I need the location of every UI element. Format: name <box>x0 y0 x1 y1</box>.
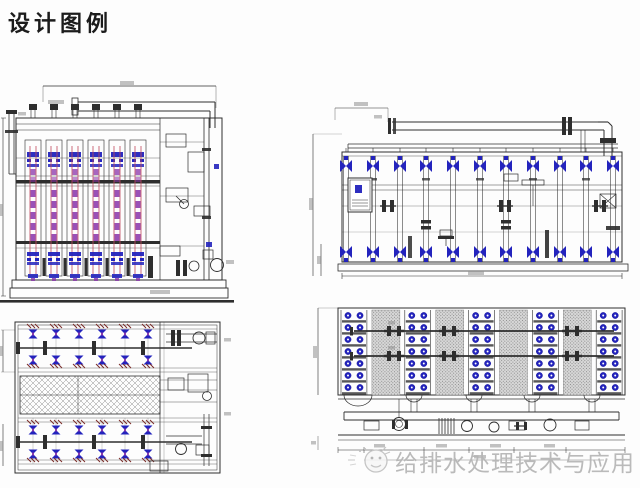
drawing-side-elevation <box>300 86 640 302</box>
mid-couplings <box>380 174 620 258</box>
right-piping <box>150 322 217 473</box>
bottom-dimension <box>342 271 622 279</box>
module-cluster-column <box>405 310 431 395</box>
hatch-column <box>436 310 464 395</box>
aeration-hatch-zone <box>20 376 217 414</box>
membrane-module <box>25 104 41 281</box>
module-cluster-column <box>341 310 367 395</box>
module-cluster-column <box>596 310 622 395</box>
right-piping <box>160 118 234 280</box>
control-cabinet <box>348 178 372 212</box>
hatch-column <box>500 310 528 395</box>
pipe-column <box>394 148 406 262</box>
hatch-column <box>372 310 400 395</box>
base-lines <box>338 435 625 440</box>
module-cluster-column <box>532 310 558 395</box>
pipe-column <box>580 148 592 262</box>
dimension-lines <box>311 308 338 450</box>
drawing-front-elevation <box>0 56 238 306</box>
pump-valve-row <box>364 399 589 434</box>
manifold <box>338 395 625 420</box>
membrane-module <box>130 104 146 281</box>
page-title: 设计图例 <box>8 6 112 38</box>
membrane-module <box>88 104 104 281</box>
pipe-column <box>554 148 566 262</box>
pipe-column <box>420 148 432 262</box>
drawing-plan-valve-gallery <box>0 296 236 488</box>
pipe-column <box>447 148 459 262</box>
page: 设计图例 给排水处理技术与应用 <box>0 0 640 488</box>
pipe-column <box>474 148 486 262</box>
top-pipe <box>374 115 616 156</box>
top-pipe <box>72 98 215 128</box>
module-cluster-column <box>469 310 495 395</box>
drawing-plan-module-field <box>304 294 640 490</box>
bottom-dimension <box>338 444 625 460</box>
membrane-module <box>46 104 62 281</box>
membrane-module <box>67 104 83 281</box>
membrane-module <box>109 104 125 281</box>
